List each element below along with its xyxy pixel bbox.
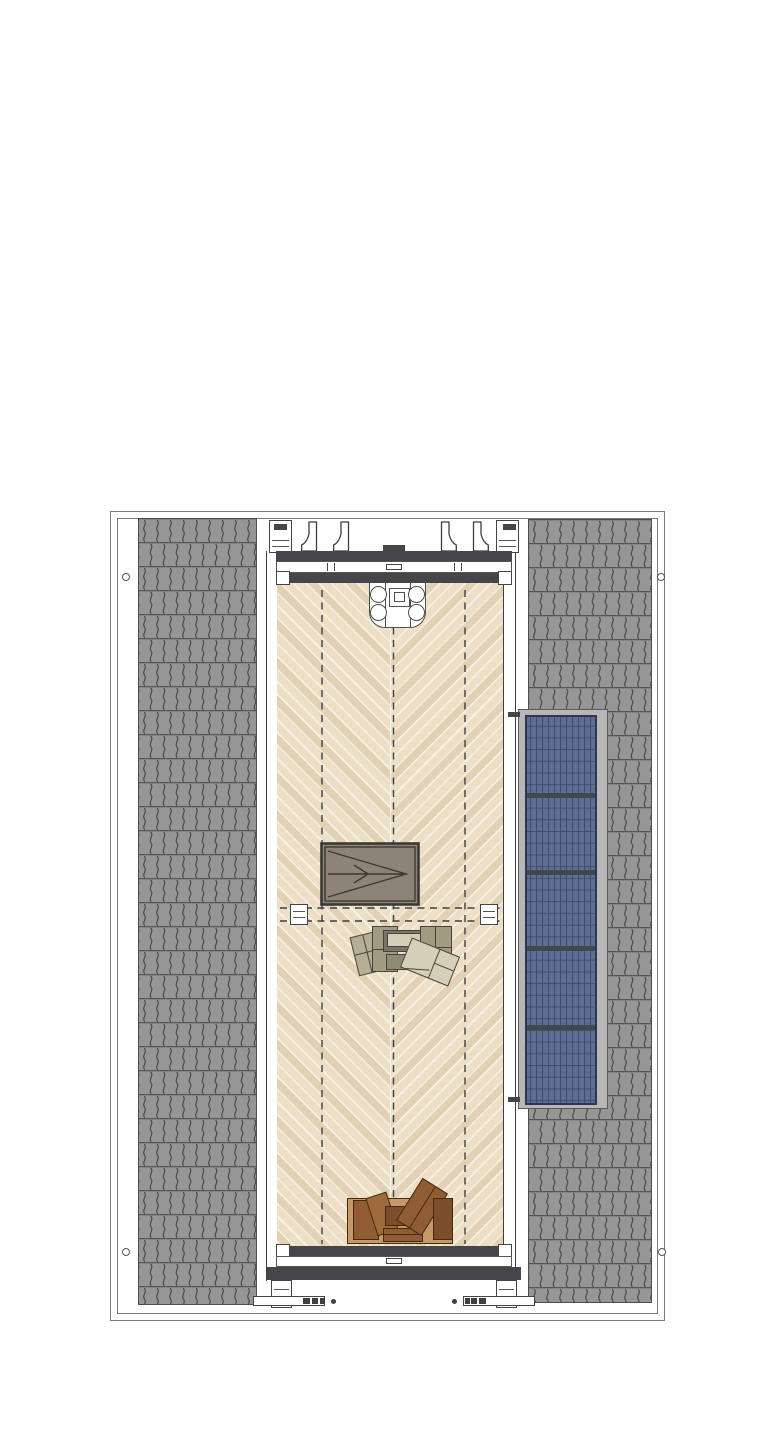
table-firebowl-inner	[394, 592, 405, 602]
dining-set	[361, 577, 427, 639]
roof-fin	[472, 521, 489, 552]
deck-cleat-left	[290, 904, 308, 925]
survey-marker	[122, 573, 130, 581]
survey-marker	[658, 1248, 666, 1256]
beam-cap	[498, 571, 512, 585]
bottom-beam-dark-lower	[267, 1267, 521, 1280]
bottom-beam-dark-upper	[288, 1246, 500, 1256]
corner-post-top-right	[496, 520, 519, 553]
dining-stool	[408, 586, 425, 603]
deck-cleat-right	[480, 904, 498, 925]
top-beam-dark-lower	[288, 573, 500, 583]
page-canvas: { "page": { "kind": "architectural roof …	[0, 0, 768, 1434]
arm-fitting	[303, 1298, 310, 1304]
roof-fin	[333, 521, 350, 552]
corner-post-top-left	[269, 520, 292, 553]
wood-storage-group	[345, 1188, 457, 1248]
beam-tick	[327, 563, 335, 571]
beam-tick-center	[386, 1258, 402, 1264]
beam-tick	[454, 563, 462, 571]
solar-panel-array	[525, 715, 597, 1105]
survey-marker	[122, 1248, 130, 1256]
guide-dashed-lines	[277, 556, 503, 1268]
terrace-wall-right	[503, 551, 516, 1281]
wood-crate	[433, 1198, 453, 1240]
roof-fin	[440, 521, 457, 552]
roof-fin	[301, 521, 318, 552]
beam-cap	[276, 571, 290, 585]
solar-mount-bottom	[508, 1097, 520, 1102]
arm-fitting	[479, 1298, 486, 1304]
arm-fitting	[465, 1298, 470, 1304]
arm-fitting	[312, 1298, 318, 1304]
top-beam-dark-upper	[276, 551, 512, 561]
arm-fitting	[320, 1298, 325, 1304]
anchor-dot	[331, 1299, 336, 1304]
solar-mount-top	[508, 712, 520, 717]
beam-tick-center	[386, 564, 402, 570]
roof-hatch	[320, 842, 420, 906]
left-roof-shingles	[138, 518, 257, 1305]
survey-marker	[657, 573, 665, 581]
dining-stool	[370, 586, 387, 603]
lounge-group	[352, 924, 460, 982]
anchor-dot	[452, 1299, 457, 1304]
dining-stool	[370, 604, 387, 621]
dining-stool	[408, 604, 425, 621]
arm-fitting	[471, 1298, 477, 1304]
